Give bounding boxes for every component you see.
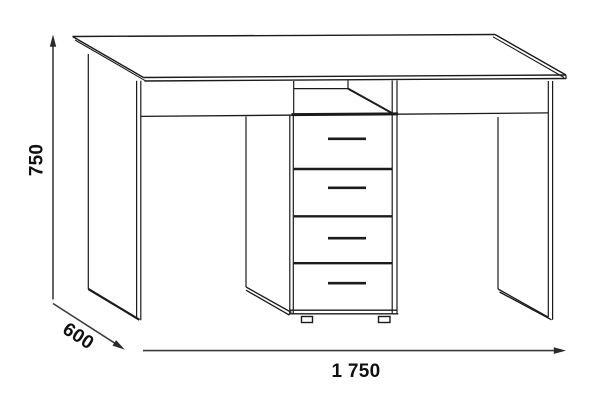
up-arrow-icon bbox=[50, 35, 56, 47]
technical-drawing-canvas: 750 600 1 750 bbox=[0, 0, 602, 401]
depth-dimension: 600 bbox=[53, 304, 125, 355]
right-side-panel bbox=[498, 81, 553, 320]
desk-drawing: 750 600 1 750 bbox=[0, 0, 602, 401]
drawer-dividers bbox=[294, 169, 392, 263]
width-dimension: 1 750 bbox=[143, 347, 566, 382]
right-arrow-icon bbox=[554, 347, 566, 354]
desktop bbox=[73, 35, 567, 82]
depth-dimension-label: 600 bbox=[59, 319, 98, 354]
desk bbox=[73, 35, 567, 323]
drawer-pedestal bbox=[246, 81, 398, 323]
height-dimension: 750 bbox=[27, 35, 57, 300]
open-niche bbox=[294, 81, 394, 115]
pedestal-foot-right bbox=[379, 317, 391, 323]
width-dimension-label: 1 750 bbox=[331, 361, 380, 382]
height-dimension-label: 750 bbox=[27, 144, 48, 177]
diagonal-arrow-icon bbox=[113, 340, 125, 350]
left-side-panel bbox=[88, 54, 141, 320]
pedestal-foot-left bbox=[302, 317, 313, 323]
